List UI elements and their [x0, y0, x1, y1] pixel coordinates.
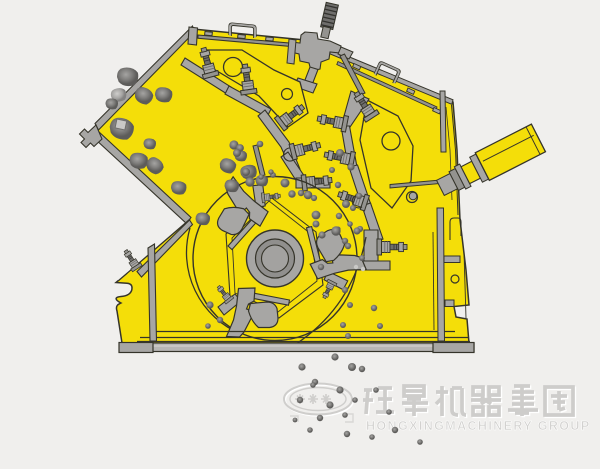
svg-text:HONGXINGMACHINERY GROUP: HONGXINGMACHINERY GROUP	[366, 419, 591, 433]
